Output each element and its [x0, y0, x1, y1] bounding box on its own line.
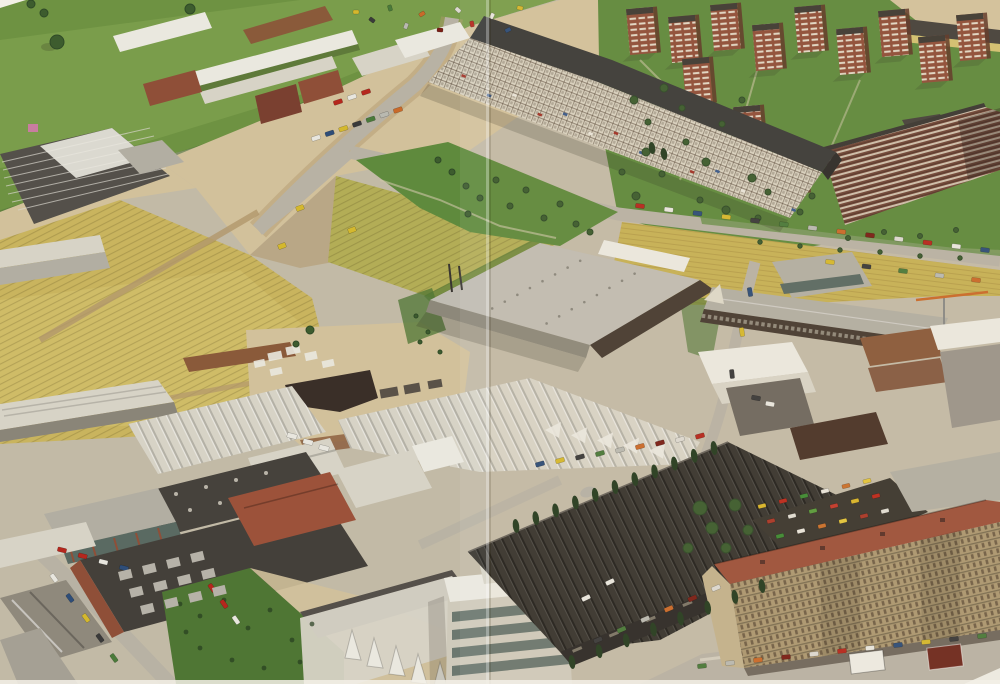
shrub [198, 646, 203, 651]
aerial-scene: Oblique aerial photograph of a 1970s urb… [0, 0, 1000, 684]
shrub [198, 614, 203, 619]
shrub [290, 638, 295, 643]
aerial-photograph: Oblique aerial photograph of a 1970s urb… [0, 0, 1000, 684]
shrub [310, 622, 315, 627]
tree [438, 350, 442, 354]
tree [414, 314, 418, 318]
car [437, 28, 443, 33]
roof-vent [503, 300, 506, 303]
roof-vent [570, 308, 573, 311]
tree [27, 0, 35, 8]
fold-crease-dark [489, 0, 491, 684]
shrub [230, 658, 235, 663]
roof-vent [529, 287, 532, 290]
roof-vent [541, 280, 544, 283]
roof-vent [558, 315, 561, 318]
roof-vent [633, 272, 636, 275]
tree [50, 35, 64, 49]
right-page-tint [491, 0, 1000, 684]
tree [293, 341, 299, 347]
shrub [246, 626, 251, 631]
page-edge-bottom [0, 680, 1000, 684]
tree [306, 326, 314, 334]
shrub [184, 630, 189, 635]
fold-crease-light [486, 0, 489, 684]
fold-glow [460, 0, 490, 684]
roof-vent [596, 294, 599, 297]
shrub [268, 608, 273, 613]
roof-vent [608, 287, 611, 290]
roof-vent [491, 307, 494, 310]
shrub [298, 660, 303, 665]
shrub [262, 666, 267, 671]
roof-vent [545, 322, 548, 325]
roof-vent [579, 259, 582, 262]
tree [185, 4, 195, 14]
roof-vent [566, 266, 569, 269]
roof-vent [583, 301, 586, 304]
car [353, 10, 359, 14]
tree [435, 157, 441, 163]
tree [449, 169, 455, 175]
roof-vent [516, 294, 519, 297]
pink-structure [28, 124, 38, 132]
tree [40, 9, 48, 17]
roof-vent [621, 279, 624, 282]
tree [426, 330, 430, 334]
roof-vent [554, 273, 557, 276]
tree [418, 340, 422, 344]
